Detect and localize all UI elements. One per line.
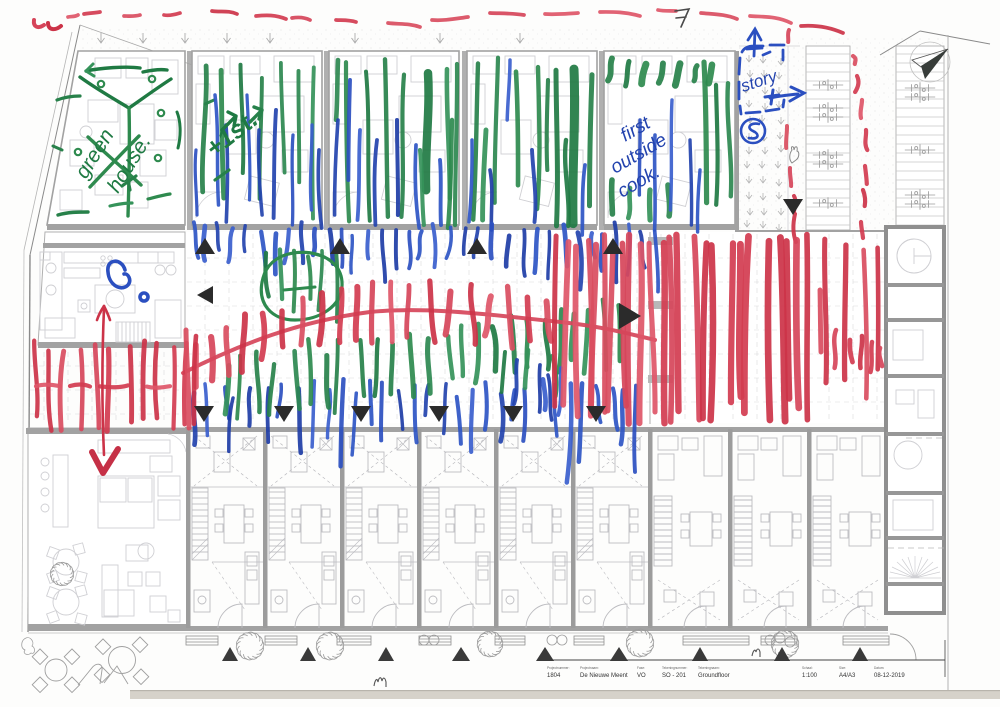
svg-text:De Nieuwe Meent: De Nieuwe Meent	[580, 673, 628, 679]
svg-text:Projectnummer:: Projectnummer:	[547, 666, 570, 670]
svg-text:A4/A3: A4/A3	[839, 673, 856, 679]
svg-text:VO: VO	[637, 673, 646, 679]
svg-text:08-12-2019: 08-12-2019	[874, 673, 905, 679]
svg-text:1804: 1804	[547, 673, 561, 679]
svg-text:Groundfloor: Groundfloor	[698, 673, 730, 679]
svg-text:Projectnaam:: Projectnaam:	[580, 666, 599, 670]
svg-text:Size:: Size:	[839, 666, 846, 670]
svg-text:Datum:: Datum:	[874, 666, 884, 670]
svg-text:Tekeningnummer:: Tekeningnummer:	[662, 666, 687, 670]
svg-text:Schaal:: Schaal:	[802, 666, 813, 670]
svg-text:Tekeningnaam:: Tekeningnaam:	[698, 666, 720, 670]
svg-text:1:100: 1:100	[802, 673, 818, 679]
svg-text:Fase:: Fase:	[637, 666, 645, 670]
svg-text:SO - 201: SO - 201	[662, 673, 687, 679]
